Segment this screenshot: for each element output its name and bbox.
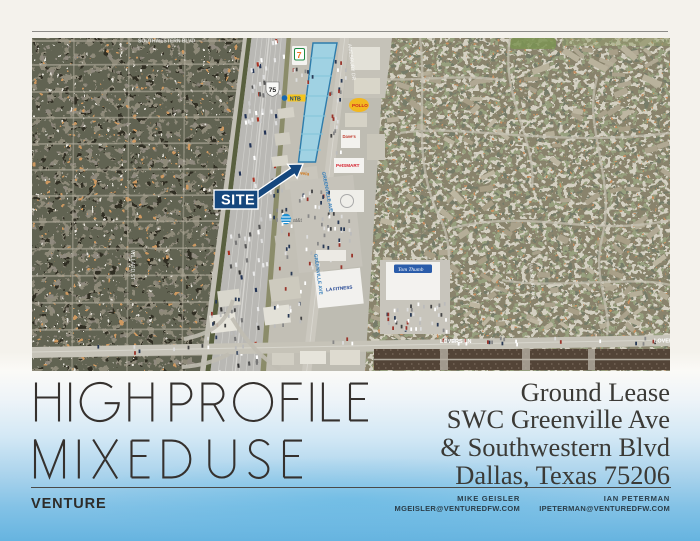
svg-text:LOVERS LN: LOVERS LN: [654, 339, 670, 345]
svg-text:7: 7: [297, 50, 302, 60]
svg-text:Dave's: Dave's: [343, 134, 357, 139]
svg-text:Tom Thumb: Tom Thumb: [398, 267, 424, 273]
svg-text:POLLO: POLLO: [352, 103, 368, 108]
svg-text:SOUTHWESTERN BLVD: SOUTHWESTERN BLVD: [138, 39, 196, 45]
svg-text:NTB: NTB: [290, 96, 301, 102]
svg-text:at&t: at&t: [293, 218, 303, 224]
svg-text:PetSMART: PetSMART: [336, 163, 360, 168]
svg-text:WILLARD ST: WILLARD ST: [129, 250, 135, 280]
svg-text:LOVERS LN: LOVERS LN: [440, 339, 472, 345]
svg-text:SITE: SITE: [221, 193, 255, 209]
svg-text:75: 75: [269, 87, 277, 94]
